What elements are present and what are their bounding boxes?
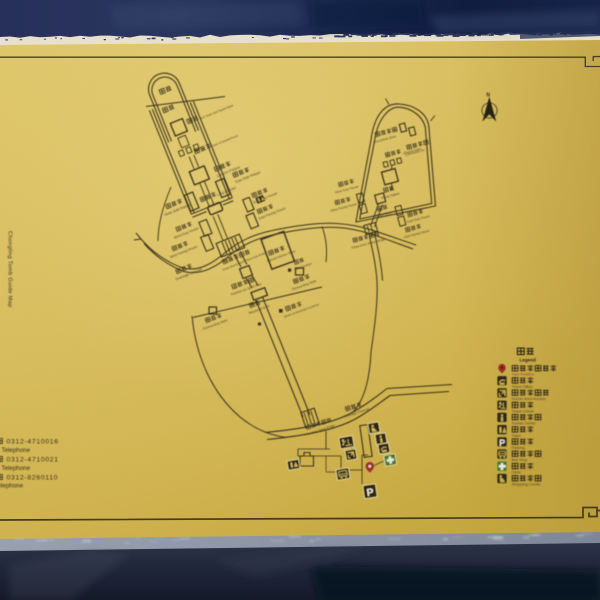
svg-text:Ticket Office: Ticket Office bbox=[512, 384, 533, 389]
svg-text:Scenic Area Access: Scenic Area Access bbox=[512, 396, 546, 401]
svg-text:Shopping Center: Shopping Center bbox=[512, 482, 542, 487]
svg-text:0312-4710016: 0312-4710016 bbox=[7, 439, 59, 446]
svg-text:P: P bbox=[499, 438, 505, 448]
svg-text:Legend: Legend bbox=[520, 358, 537, 363]
svg-text:Toilet: Toilet bbox=[512, 433, 522, 438]
svg-text:Telephone: Telephone bbox=[0, 483, 24, 490]
svg-text:Parking: Parking bbox=[512, 445, 525, 450]
svg-text:0312-4710021: 0312-4710021 bbox=[7, 457, 59, 464]
svg-text:N: N bbox=[486, 93, 490, 99]
svg-text:Tourist Center: Tourist Center bbox=[512, 421, 537, 426]
svg-text:Your Position: Your Position bbox=[512, 372, 535, 377]
svg-text:Bus Stop: Bus Stop bbox=[512, 457, 528, 462]
svg-text:Telephone: Telephone bbox=[2, 465, 31, 472]
svg-text:0312-8260110: 0312-8260110 bbox=[7, 475, 59, 482]
svg-text:Clinic: Clinic bbox=[512, 470, 522, 475]
svg-text:Chongling Tomb Guide Map: Chongling Tomb Guide Map bbox=[7, 231, 13, 307]
svg-text:Telephone: Telephone bbox=[2, 447, 31, 454]
svg-text:Ticket Check: Ticket Check bbox=[512, 408, 534, 413]
